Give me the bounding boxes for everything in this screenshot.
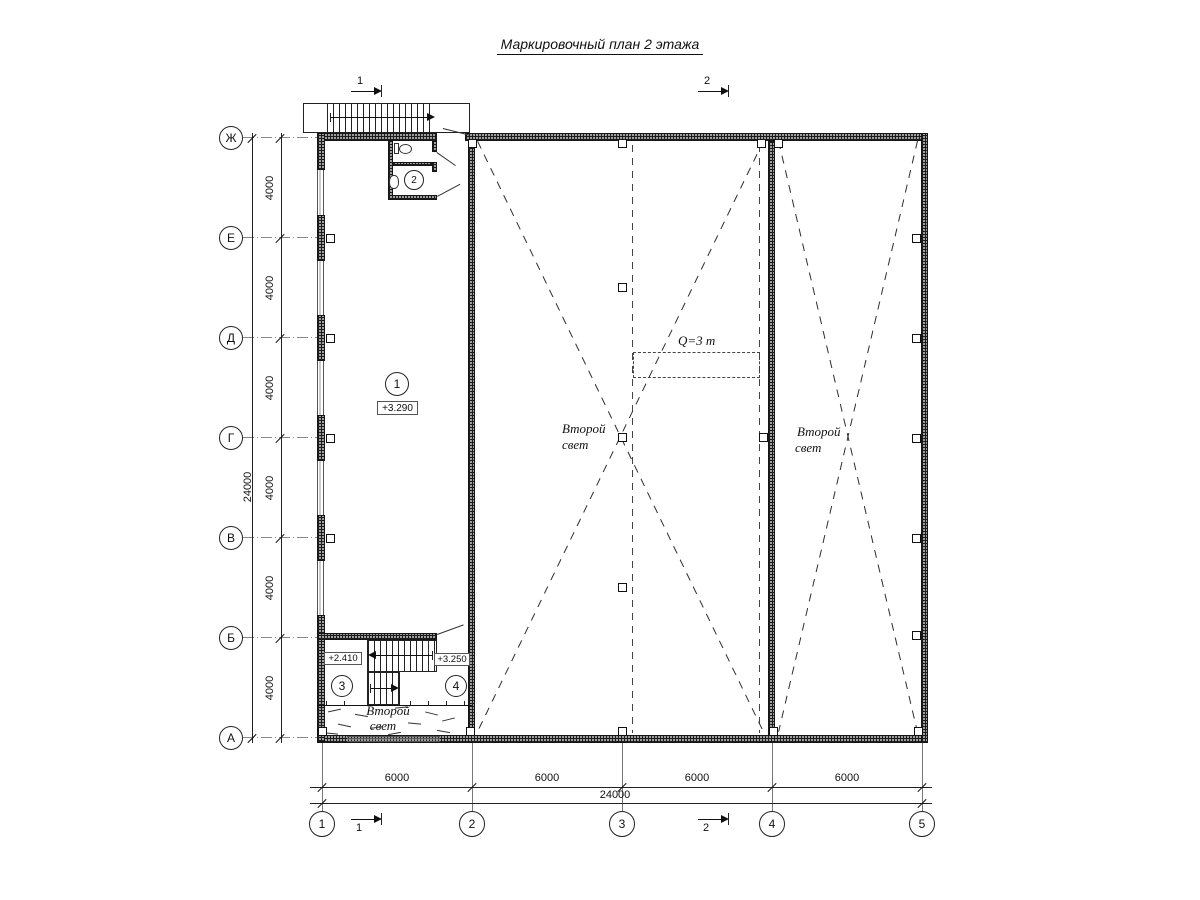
dim-tick bbox=[275, 234, 284, 243]
column-marker bbox=[912, 334, 921, 343]
wc-bowl-icon bbox=[399, 144, 412, 154]
axis-extension bbox=[772, 743, 773, 811]
second-light-label: свет bbox=[352, 718, 414, 734]
dim-tick bbox=[275, 134, 284, 143]
column-marker bbox=[759, 433, 768, 442]
column-marker bbox=[774, 139, 783, 148]
window-left bbox=[317, 561, 324, 615]
wall-top bbox=[317, 133, 437, 141]
dim-label-24000-left: 24000 bbox=[241, 465, 255, 509]
toilet-wall-right bbox=[432, 141, 437, 152]
stair-walk-line bbox=[330, 117, 430, 118]
sink-icon bbox=[389, 175, 399, 189]
dim-tick bbox=[275, 534, 284, 543]
edge-tick bbox=[446, 701, 447, 705]
column-marker bbox=[912, 631, 921, 640]
grid-axis-letter-circle: Ж bbox=[219, 126, 243, 150]
stair-walk-line bbox=[374, 655, 432, 656]
column-marker bbox=[468, 139, 477, 148]
door-leaf bbox=[437, 184, 460, 197]
dim-label-4000: 4000 bbox=[263, 168, 277, 208]
dim-tick bbox=[275, 634, 284, 643]
toilet-wall-bottom bbox=[388, 195, 437, 200]
column-marker bbox=[914, 727, 923, 736]
edge-tick bbox=[326, 701, 327, 705]
stair-direction-arrow-icon bbox=[391, 684, 399, 692]
column-marker bbox=[618, 283, 627, 292]
column-marker bbox=[326, 434, 335, 443]
wall-axis-2 bbox=[468, 141, 475, 735]
dim-tick bbox=[275, 334, 284, 343]
toilet-wall-right bbox=[432, 162, 437, 172]
column-marker bbox=[466, 727, 475, 736]
door-leaf bbox=[437, 624, 464, 635]
dim-line-left-total bbox=[252, 133, 253, 743]
dim-label-6000: 6000 bbox=[369, 772, 425, 784]
dim-tick bbox=[275, 434, 284, 443]
section-mark-1-bottom-tick bbox=[381, 813, 382, 825]
section-mark-2-bottom-label: 2 bbox=[703, 822, 709, 834]
window-bottom bbox=[347, 736, 440, 742]
wall-top bbox=[465, 133, 928, 141]
void-hatch-dash bbox=[328, 709, 341, 713]
section-mark-1-bottom-label: 1 bbox=[356, 822, 362, 834]
window-left bbox=[317, 461, 324, 515]
dim-label-4000: 4000 bbox=[263, 568, 277, 608]
section-mark-2-bottom-line bbox=[698, 819, 722, 820]
second-light-label: Второй bbox=[797, 424, 841, 440]
stair-break-line bbox=[428, 641, 429, 671]
wall-left-pier bbox=[317, 515, 325, 561]
wall-right bbox=[921, 133, 928, 743]
column-marker bbox=[618, 583, 627, 592]
column-marker bbox=[912, 234, 921, 243]
void-edge-line bbox=[317, 705, 472, 706]
wall-left-pier bbox=[317, 215, 325, 261]
dim-label-4000: 4000 bbox=[263, 468, 277, 508]
void-hatch-dash bbox=[437, 730, 450, 733]
column-marker bbox=[769, 727, 778, 736]
column-marker bbox=[618, 139, 627, 148]
void-hatch-dash bbox=[338, 724, 351, 728]
stair-flight-upper bbox=[367, 640, 437, 672]
edge-tick bbox=[410, 701, 411, 705]
stair-walk-start-tick bbox=[330, 113, 331, 122]
crane-bridge-outline bbox=[633, 352, 760, 378]
elevation-label-room1: +3.290 bbox=[377, 401, 418, 415]
section-mark-1-top-label: 1 bbox=[357, 75, 363, 87]
edge-tick bbox=[344, 701, 345, 705]
void-hatch-dash bbox=[442, 717, 455, 721]
stair-direction-arrow-icon bbox=[427, 113, 435, 121]
section-mark-2-bottom-tick bbox=[728, 813, 729, 825]
column-marker bbox=[618, 433, 627, 442]
column-marker bbox=[912, 434, 921, 443]
dim-tick bbox=[275, 734, 284, 743]
stair-direction-arrow-icon bbox=[368, 651, 376, 659]
section-mark-2-top-tick bbox=[728, 85, 729, 97]
grid-axis-number-circle: 1 bbox=[309, 811, 335, 837]
door-leaf bbox=[436, 152, 455, 166]
stair-flight-top bbox=[327, 104, 434, 132]
grid-axis-letter-circle: А bbox=[219, 726, 243, 750]
grid-axis-number-circle: 2 bbox=[459, 811, 485, 837]
dim-label-4000: 4000 bbox=[263, 268, 277, 308]
void-hatch-dash bbox=[425, 711, 438, 715]
edge-tick bbox=[428, 701, 429, 705]
second-light-label: свет bbox=[562, 437, 588, 453]
column-marker bbox=[318, 727, 327, 736]
elevation-label-room4: +3.250 bbox=[434, 653, 470, 666]
floor-plan-sheet: Маркировочный план 2 этажа 1 2 Ж Е Д Г В… bbox=[0, 0, 1200, 900]
window-left bbox=[317, 170, 324, 215]
dim-label-4000: 4000 bbox=[263, 368, 277, 408]
wall-left-pier bbox=[317, 315, 325, 361]
crane-capacity-label: Q=3 т bbox=[678, 333, 715, 349]
grid-axis-letter-circle: Б bbox=[219, 626, 243, 650]
grid-axis-letter-circle: Г bbox=[219, 426, 243, 450]
grid-axis-letter-circle: В bbox=[219, 526, 243, 550]
column-marker bbox=[326, 234, 335, 243]
grid-axis-number-circle: 4 bbox=[759, 811, 785, 837]
wall-left-pier bbox=[317, 415, 325, 461]
grid-axis-number-circle: 3 bbox=[609, 811, 635, 837]
stair-walk-start-tick bbox=[370, 684, 371, 693]
axis-extension bbox=[472, 743, 473, 811]
wall-axis-4 bbox=[768, 141, 775, 735]
dim-label-4000: 4000 bbox=[263, 668, 277, 708]
column-marker bbox=[912, 534, 921, 543]
room-marker-3: 3 bbox=[331, 675, 353, 697]
dim-label-6000: 6000 bbox=[519, 772, 575, 784]
section-mark-1-top-tick bbox=[381, 85, 382, 97]
dim-line-bottom-total bbox=[310, 803, 932, 804]
column-marker bbox=[618, 727, 627, 736]
dim-label-24000-bottom: 24000 bbox=[585, 789, 645, 801]
grid-axis-number-circle: 5 bbox=[909, 811, 935, 837]
room-marker-2: 2 bbox=[404, 170, 424, 190]
section-mark-2-top-line bbox=[698, 91, 722, 92]
column-marker bbox=[326, 534, 335, 543]
column-marker bbox=[326, 334, 335, 343]
stair-block-wall bbox=[317, 633, 437, 640]
dim-label-6000: 6000 bbox=[819, 772, 875, 784]
window-left bbox=[317, 361, 324, 415]
second-light-label: Второй bbox=[562, 421, 606, 437]
elevation-label-room3: +2.410 bbox=[324, 652, 362, 665]
section-mark-1-top-line bbox=[351, 91, 375, 92]
window-left bbox=[317, 261, 324, 315]
second-light-label: свет bbox=[795, 440, 821, 456]
crane-rail-line bbox=[632, 145, 633, 733]
section-mark-2-top-label: 2 bbox=[704, 75, 710, 87]
grid-axis-letter-circle: Д bbox=[219, 326, 243, 350]
room-marker-4: 4 bbox=[445, 675, 467, 697]
page-title: Маркировочный план 2 этажа bbox=[0, 36, 1200, 52]
grid-axis-letter-circle: Е bbox=[219, 226, 243, 250]
section-mark-1-bottom-line bbox=[351, 819, 375, 820]
toilet-partition bbox=[393, 162, 432, 166]
stair-walk-start-tick bbox=[432, 651, 433, 660]
toilet-wall-left bbox=[388, 141, 393, 200]
column-marker bbox=[757, 139, 766, 148]
room-marker-1: 1 bbox=[385, 372, 409, 396]
wall-left-pier bbox=[317, 133, 325, 170]
dim-label-6000: 6000 bbox=[669, 772, 725, 784]
edge-tick bbox=[464, 701, 465, 705]
